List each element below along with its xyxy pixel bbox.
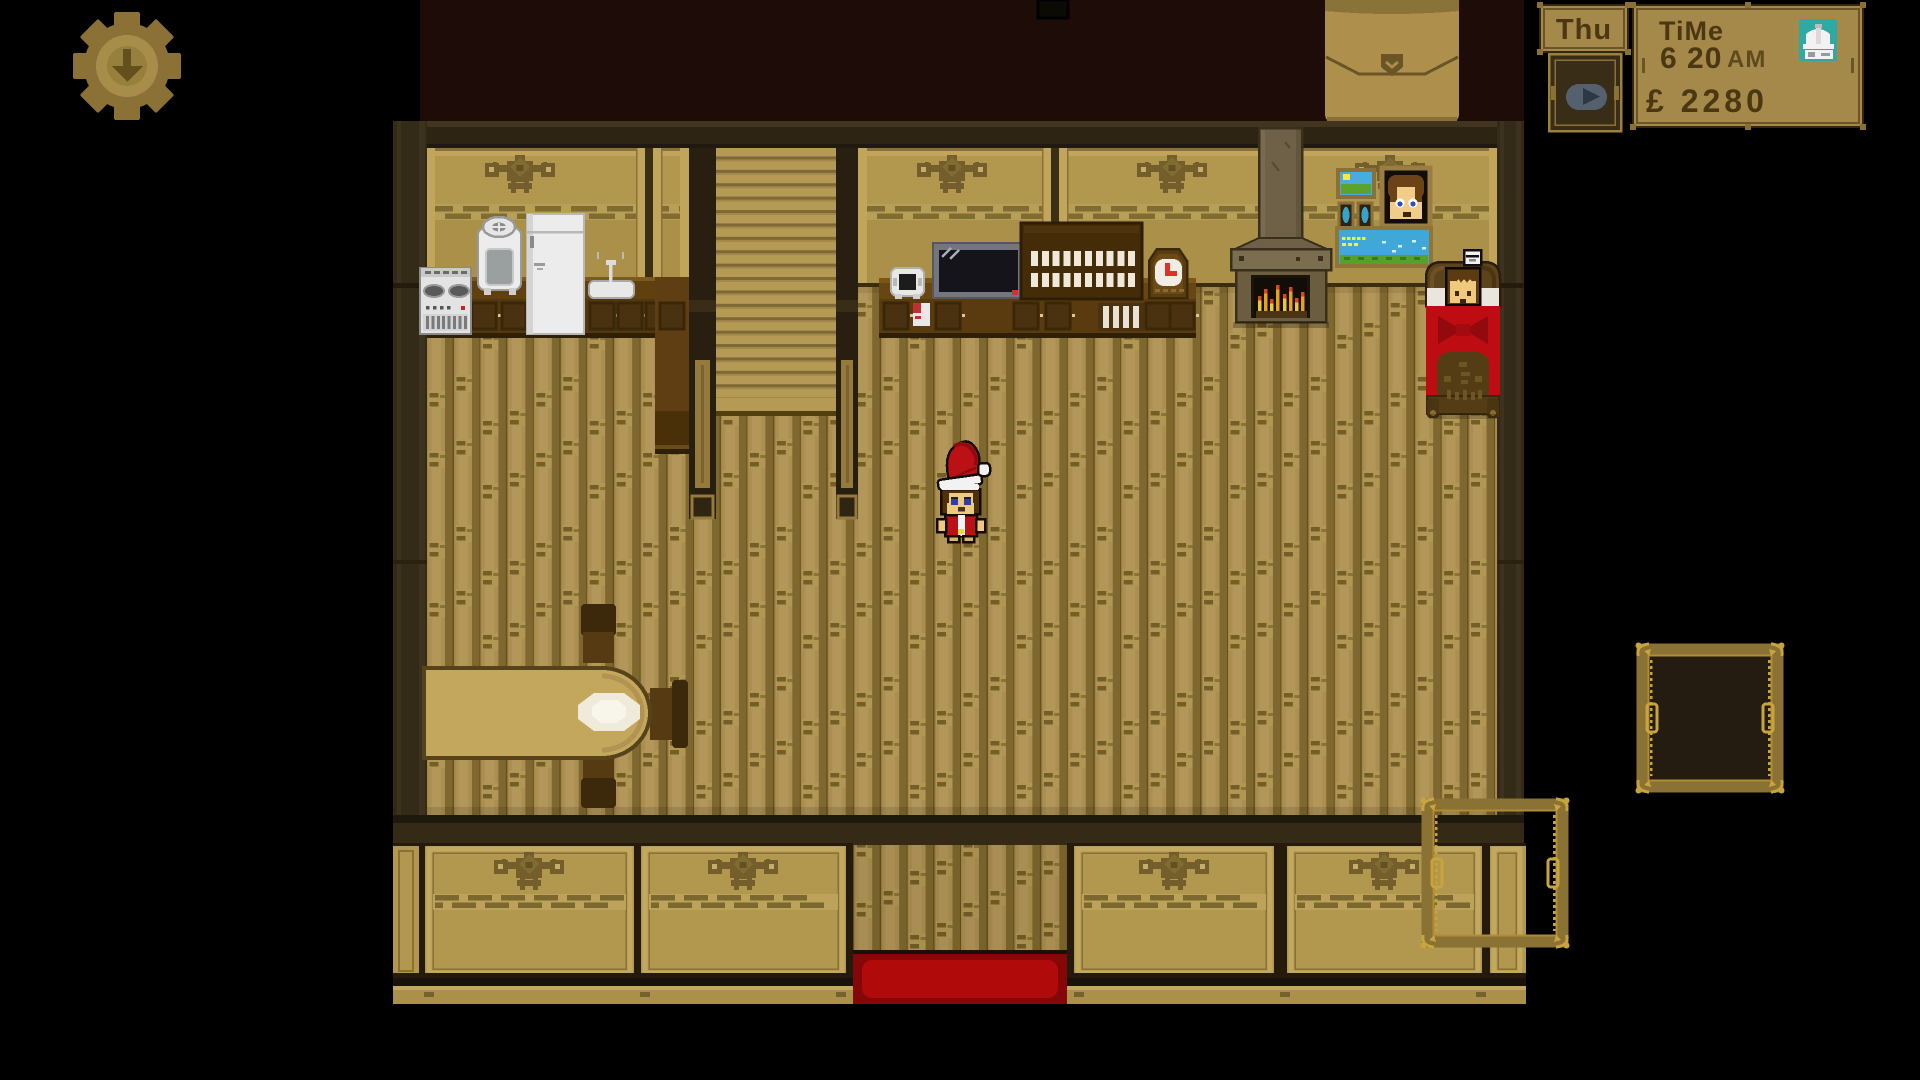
- svg-text:£ 2280: £ 2280: [1646, 83, 1768, 119]
- svg-text:AM: AM: [1727, 46, 1766, 73]
- svg-text:6 20: 6 20: [1660, 42, 1722, 75]
- svg-text:Thu: Thu: [1556, 14, 1612, 46]
